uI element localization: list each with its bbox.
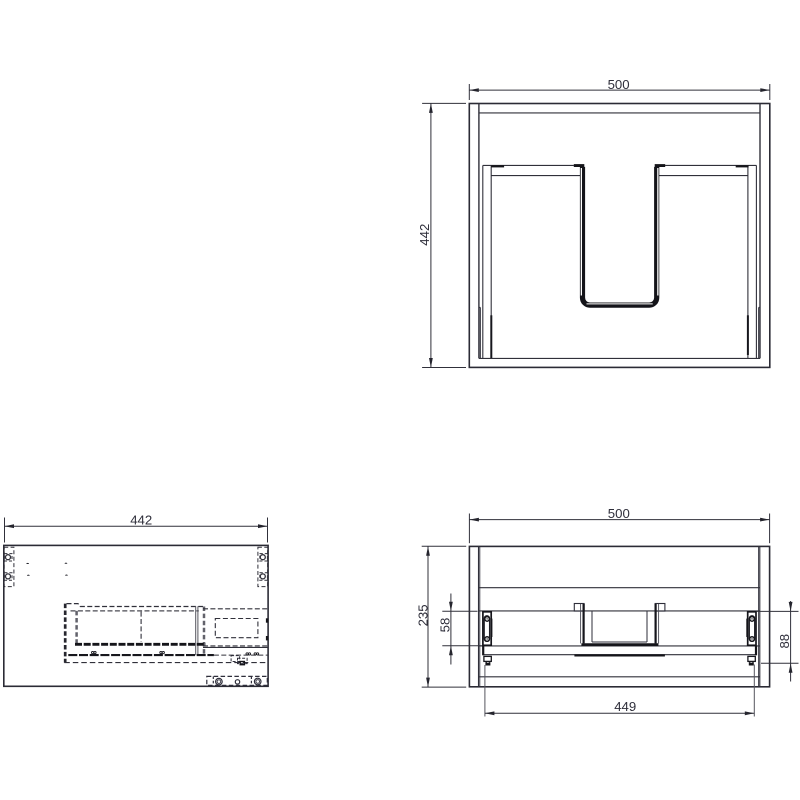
svg-text:500: 500 xyxy=(608,506,630,521)
svg-text:88: 88 xyxy=(777,634,792,649)
svg-text:58: 58 xyxy=(437,618,452,633)
svg-text:500: 500 xyxy=(608,77,630,92)
svg-text:449: 449 xyxy=(614,699,636,714)
svg-text:235: 235 xyxy=(415,604,430,626)
svg-text:442: 442 xyxy=(130,513,152,528)
svg-text:442: 442 xyxy=(417,224,432,246)
